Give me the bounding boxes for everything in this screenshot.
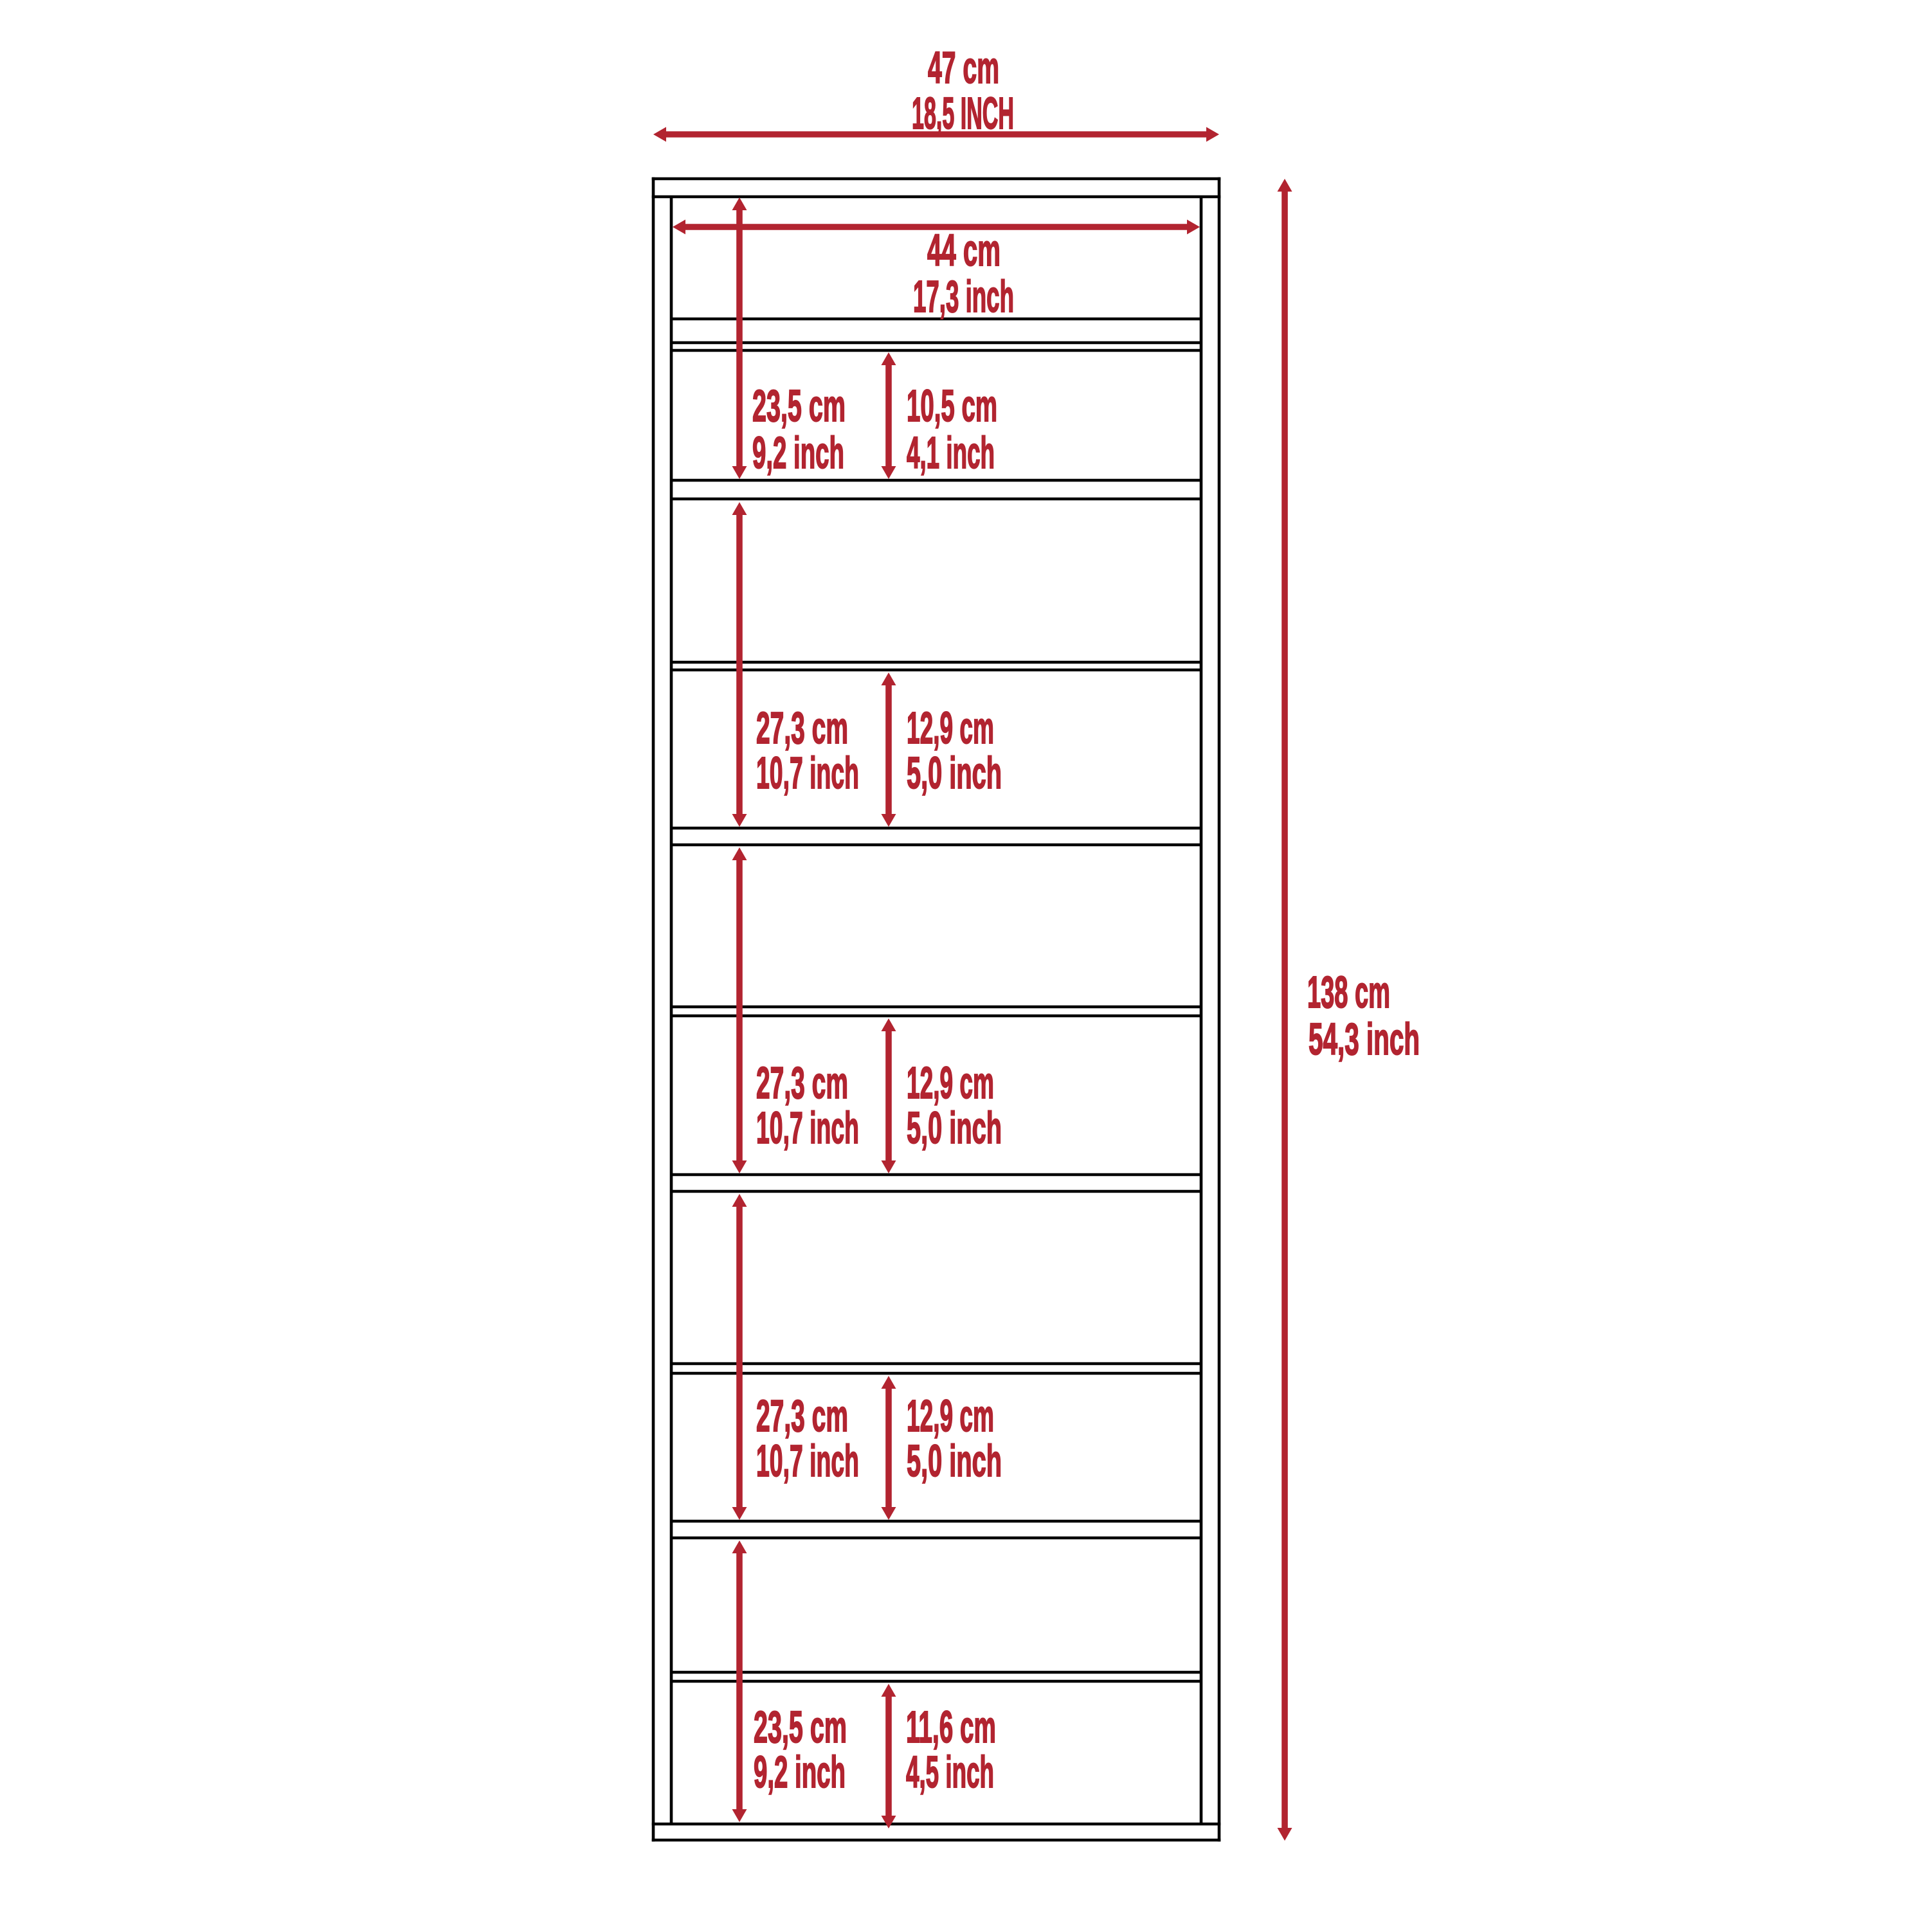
svg-text:27,3 cm: 27,3 cm [756, 703, 848, 753]
svg-text:9,2 inch: 9,2 inch [754, 1747, 846, 1797]
svg-text:5,0 inch: 5,0 inch [907, 1436, 1002, 1486]
svg-text:11,6 cm: 11,6 cm [906, 1702, 996, 1752]
svg-text:27,3 cm: 27,3 cm [756, 1058, 848, 1108]
svg-text:44 cm: 44 cm [927, 225, 1001, 275]
svg-text:4,1 inch: 4,1 inch [907, 428, 995, 478]
svg-text:5,0 inch: 5,0 inch [907, 748, 1002, 798]
svg-text:18,5 INCH: 18,5 INCH [912, 88, 1014, 138]
svg-text:10,5 cm: 10,5 cm [907, 381, 997, 431]
svg-text:27,3 cm: 27,3 cm [756, 1391, 848, 1441]
svg-text:138 cm: 138 cm [1307, 967, 1390, 1017]
svg-text:12,9 cm: 12,9 cm [907, 1058, 994, 1108]
svg-text:47 cm: 47 cm [928, 42, 999, 93]
svg-text:54,3 inch: 54,3 inch [1309, 1014, 1420, 1064]
svg-text:5,0 inch: 5,0 inch [907, 1103, 1002, 1153]
svg-text:9,2 inch: 9,2 inch [752, 428, 844, 478]
svg-text:17,3 inch: 17,3 inch [913, 271, 1014, 321]
svg-text:10,7 inch: 10,7 inch [756, 1436, 859, 1486]
svg-text:12,9 cm: 12,9 cm [907, 1391, 994, 1441]
svg-text:4,5 inch: 4,5 inch [906, 1747, 994, 1797]
svg-text:10,7 inch: 10,7 inch [756, 1103, 859, 1153]
svg-text:10,7 inch: 10,7 inch [756, 748, 859, 798]
svg-text:23,5 cm: 23,5 cm [754, 1702, 847, 1752]
svg-text:12,9 cm: 12,9 cm [907, 703, 994, 753]
svg-text:23,5 cm: 23,5 cm [752, 381, 846, 431]
